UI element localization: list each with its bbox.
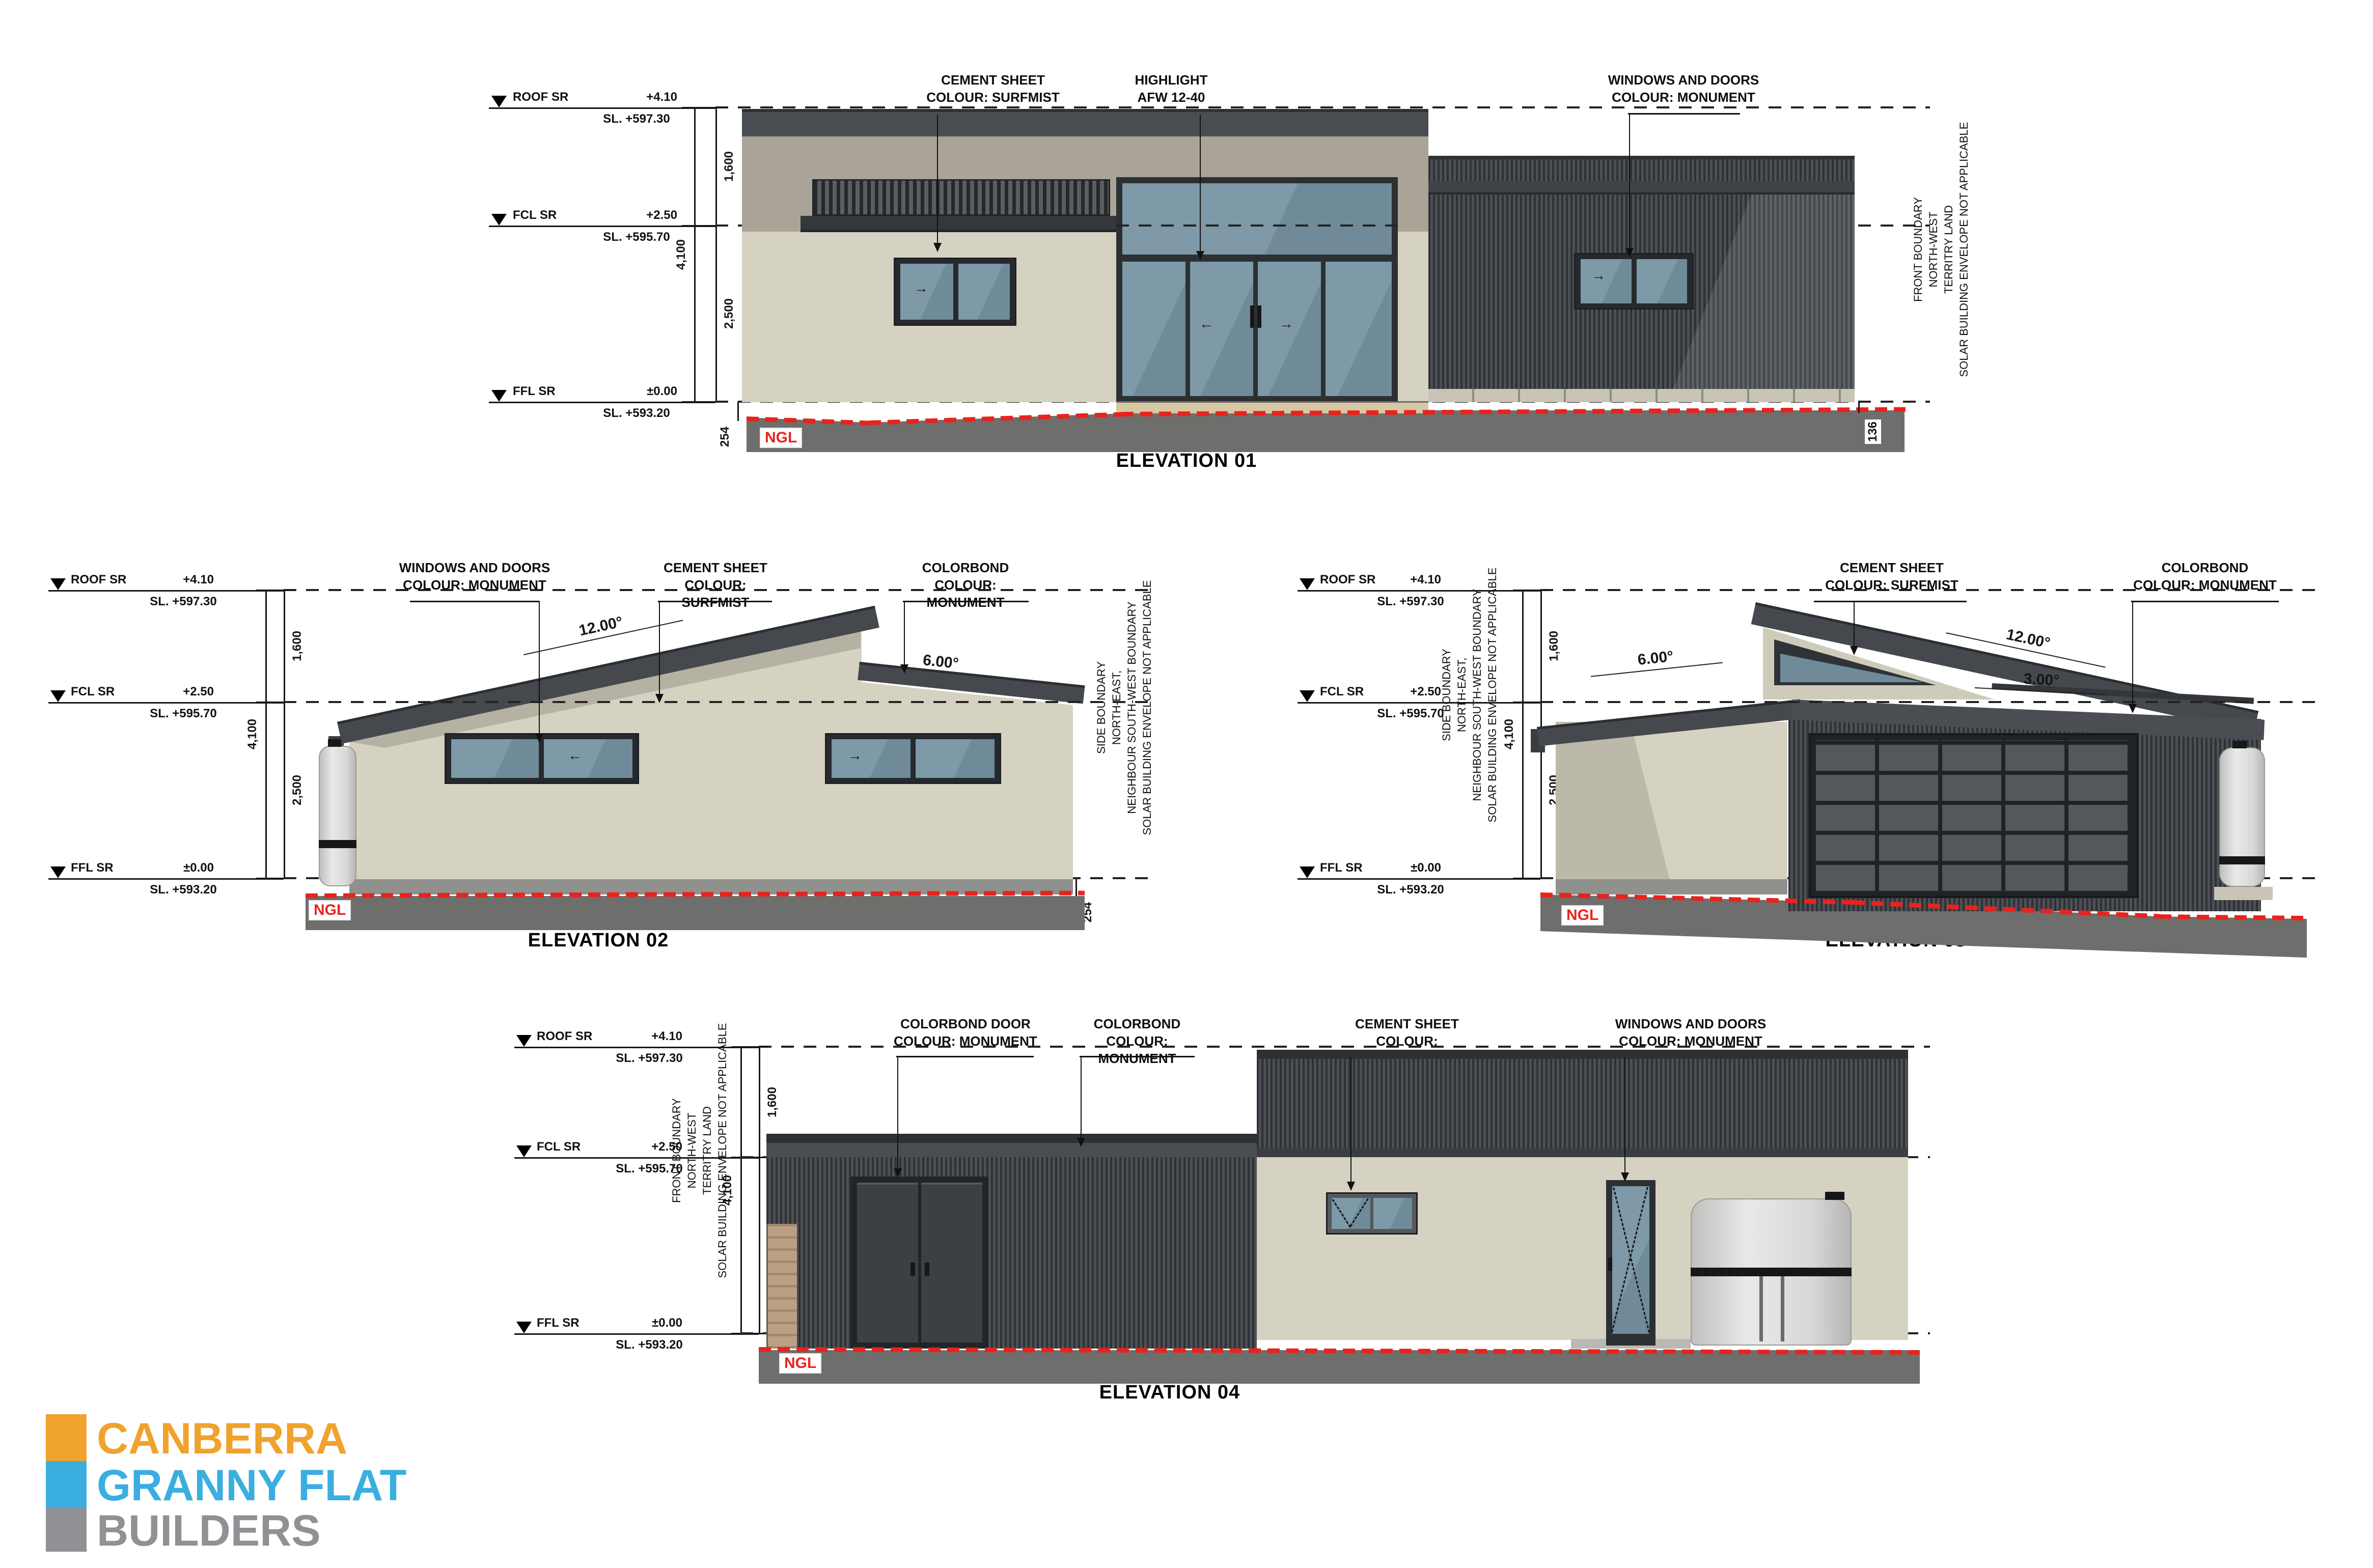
ffl-level-marker-icon bbox=[1300, 866, 1315, 878]
fcl-level-marker-icon bbox=[1300, 690, 1315, 702]
leader-arrow-icon bbox=[1196, 251, 1204, 260]
ffl-level-sl: SL. +593.20 bbox=[1370, 882, 1451, 898]
leader-arrow-icon bbox=[1850, 646, 1858, 655]
window-pane bbox=[1373, 1198, 1412, 1229]
parapet-cap bbox=[1257, 1050, 1908, 1059]
callout-colorbond-door: COLORBOND DOOR COLOUR: MONUMENT bbox=[884, 1015, 1047, 1050]
dim-roof-fcl: 1,600 bbox=[290, 631, 305, 661]
fcl-level-label: FCL SR bbox=[1320, 684, 1364, 699]
callout-leader bbox=[539, 602, 540, 734]
ffl-level-line bbox=[48, 878, 284, 880]
fcl-level-marker-icon bbox=[491, 214, 507, 226]
fcl-level-marker-icon bbox=[50, 690, 66, 702]
boundary-line: NEIGHBOUR SOUTH-WEST BOUNDARY bbox=[1470, 568, 1485, 823]
callout-line1: WINDOWS AND DOORS bbox=[1599, 71, 1768, 89]
elevation-01-title: ELEVATION 01 bbox=[1085, 450, 1288, 472]
plinth-blocks bbox=[1428, 389, 1855, 402]
door-swing-arrow-icon: ← bbox=[1199, 316, 1213, 332]
callout-line1: COLORBOND bbox=[2129, 559, 2281, 576]
ngl-offset-dim: 136 bbox=[1865, 419, 1881, 444]
fcl-level-label: FCL SR bbox=[513, 208, 557, 223]
logo-text-canberra: CANBERRA bbox=[97, 1414, 347, 1461]
fcl-dashed-over-glass bbox=[1116, 225, 1398, 227]
ngl-offset-dim-line bbox=[737, 402, 739, 421]
tank-pad bbox=[2214, 887, 2273, 900]
callout-line1: COLORBOND DOOR bbox=[884, 1015, 1047, 1032]
callout-line1: COLORBOND bbox=[1076, 1015, 1198, 1032]
dim-line-overall bbox=[265, 590, 267, 878]
callout-line2: COLOUR: MONUMENT bbox=[884, 1032, 1047, 1050]
ngl-label: NGL bbox=[779, 1353, 821, 1374]
callout-leader bbox=[1624, 1057, 1625, 1172]
tank-band bbox=[2219, 856, 2265, 864]
colorbond-roof-band bbox=[1257, 1059, 1908, 1149]
leader-arrow-icon bbox=[933, 243, 942, 252]
fcl-datum-dashed-line bbox=[1540, 701, 2322, 703]
boundary-line: SOLAR BUILDING ENVELOPE NOT APPLICABLE bbox=[715, 1023, 730, 1278]
callout-windows-doors: WINDOWS AND DOORS COLOUR: MONUMENT bbox=[393, 559, 556, 594]
colorbond-fascia bbox=[1428, 181, 1855, 194]
callout-line2: COLOUR: MONUMENT bbox=[1609, 1032, 1772, 1050]
elevation-04-title: ELEVATION 04 bbox=[1068, 1382, 1272, 1404]
callout-leader bbox=[659, 602, 660, 694]
highlight-slat-band bbox=[812, 179, 1110, 216]
callout-leader bbox=[2132, 602, 2133, 704]
tank-cap bbox=[2232, 741, 2247, 748]
ffl-level-sl: SL. +593.20 bbox=[143, 882, 224, 898]
roof-band-lip bbox=[1257, 1149, 1908, 1157]
door-handle bbox=[910, 1263, 915, 1276]
leader-arrow-icon bbox=[535, 734, 543, 743]
tank-pipe bbox=[1759, 1276, 1763, 1341]
callout-line1: HIGHLIGHT bbox=[1110, 71, 1232, 89]
ffl-level-label: FFL SR bbox=[537, 1315, 580, 1331]
dim-line-overall bbox=[740, 1047, 742, 1333]
boundary-line: NORTH-EAST, bbox=[1109, 580, 1124, 835]
boundary-line: FRONT BOUNDARY bbox=[669, 1023, 684, 1278]
boundary-note-side: SIDE BOUNDARY NORTH-EAST, NEIGHBOUR SOUT… bbox=[1094, 580, 1155, 835]
roof-level-marker-icon bbox=[1300, 578, 1315, 590]
window-slide-arrow-icon: → bbox=[1591, 267, 1606, 284]
garage-fascia bbox=[766, 1143, 1257, 1157]
dim-line-overall bbox=[694, 107, 696, 402]
garage-door bbox=[1809, 733, 2139, 898]
boundary-line: SOLAR BUILDING ENVELOPE NOT APPLICABLE bbox=[1956, 122, 1972, 377]
window-pane bbox=[544, 739, 632, 778]
callout-underline bbox=[410, 601, 540, 602]
roof-level-marker-icon bbox=[516, 1035, 532, 1047]
tank-cap bbox=[328, 739, 341, 747]
dim-tick bbox=[731, 1046, 768, 1048]
roof-level-label: ROOF SR bbox=[537, 1029, 592, 1044]
door-handle bbox=[1257, 305, 1261, 328]
roof-level-rl: +4.10 bbox=[1365, 572, 1441, 587]
ffl-level-line bbox=[1298, 878, 1540, 880]
roof-level-line bbox=[48, 590, 284, 592]
ffl-level-marker-icon bbox=[50, 866, 66, 878]
dim-roof-fcl: 1,600 bbox=[722, 151, 736, 182]
ground bbox=[306, 896, 1085, 930]
roof-datum-dashed-line bbox=[715, 106, 1930, 108]
dim-fcl-ffl: 2,500 bbox=[290, 775, 305, 805]
highlight-window bbox=[1122, 183, 1392, 255]
fcl-level-marker-icon bbox=[516, 1145, 532, 1157]
dim-tick bbox=[1513, 590, 1550, 591]
window-slide-arrow-icon: → bbox=[914, 280, 928, 296]
callout-leader bbox=[904, 602, 905, 664]
roof-level-rl: +4.10 bbox=[581, 90, 677, 105]
fcl-level-sl: SL. +595.70 bbox=[143, 706, 224, 721]
ffl-level-marker-icon bbox=[491, 390, 507, 402]
boundary-line: NORTH-WEST bbox=[684, 1023, 700, 1278]
callout-line2: COLOUR: MONUMENT bbox=[2129, 576, 2281, 594]
boundary-line: NORTH-EAST, bbox=[1454, 568, 1470, 823]
callout-line1: CEMENT SHEET bbox=[654, 559, 777, 576]
ffl-level-rl: ±0.00 bbox=[137, 860, 214, 876]
fcl-level-sl: SL. +595.70 bbox=[586, 230, 687, 245]
leader-arrow-icon bbox=[894, 1168, 902, 1178]
boundary-line: NORTH-WEST bbox=[1926, 122, 1941, 377]
callout-windows-doors: WINDOWS AND DOORS COLOUR: MONUMENT bbox=[1599, 71, 1768, 106]
fcl-datum-dashed-line bbox=[284, 701, 1148, 703]
window-slide-arrow-icon: → bbox=[848, 747, 862, 764]
callout-colorbond: COLORBOND COLOUR: MONUMENT bbox=[2129, 559, 2281, 594]
window-pane bbox=[958, 264, 1010, 320]
ffl-level-sl: SL. +593.20 bbox=[606, 1337, 693, 1353]
leader-arrow-icon bbox=[1625, 248, 1634, 257]
tank-cap bbox=[1825, 1192, 1844, 1200]
callout-line2: COLOUR: MONUMENT bbox=[1599, 89, 1768, 106]
logo-text-granny-flat: GRANNY FLAT bbox=[97, 1461, 406, 1508]
leader-arrow-icon bbox=[1621, 1172, 1629, 1182]
fcl-level-line bbox=[48, 702, 284, 704]
garage-fascia-cap bbox=[766, 1134, 1257, 1143]
dim-roof-fcl: 1,600 bbox=[765, 1087, 780, 1117]
dim-fcl-ffl: 2,500 bbox=[722, 298, 736, 329]
logo-text-builders: BUILDERS bbox=[97, 1508, 321, 1552]
ngl-offset-dim-line bbox=[1858, 401, 1860, 413]
colorbond-wall bbox=[766, 1157, 1257, 1349]
dim-tick bbox=[256, 590, 293, 591]
callout-windows-doors: WINDOWS AND DOORS COLOUR: MONUMENT bbox=[1609, 1015, 1772, 1050]
leader-arrow-icon bbox=[1347, 1182, 1355, 1191]
ffl-level-rl: ±0.00 bbox=[1365, 860, 1441, 876]
dim-line-storey bbox=[759, 1047, 760, 1333]
callout-line1: WINDOWS AND DOORS bbox=[1609, 1015, 1772, 1032]
callout-cement-sheet: CEMENT SHEET COLOUR: SURFMIST bbox=[1810, 559, 1973, 594]
colorbond-parapet bbox=[1428, 156, 1855, 181]
callout-leader bbox=[1081, 1057, 1082, 1138]
ground bbox=[759, 1350, 1920, 1384]
elevation-sheet: ROOF SR +4.10 SL. +597.30 FCL SR +2.50 S… bbox=[0, 0, 2373, 1568]
roof-level-label: ROOF SR bbox=[71, 572, 126, 587]
callout-line1: CEMENT SHEET bbox=[1810, 559, 1973, 576]
dim-line-overall bbox=[1522, 590, 1524, 878]
callout-line2: AFW 12-40 bbox=[1110, 89, 1232, 106]
callout-leader bbox=[1350, 1057, 1351, 1182]
window-pane bbox=[916, 739, 995, 778]
highlight-trim bbox=[801, 216, 1116, 232]
fcl-level-label: FCL SR bbox=[537, 1139, 581, 1155]
fcl-level-label: FCL SR bbox=[71, 684, 115, 699]
roof-level-line bbox=[1298, 590, 1540, 592]
fcl-level-line bbox=[1298, 702, 1540, 704]
roof-level-sl: SL. +597.30 bbox=[586, 111, 687, 127]
boundary-line: TERRITRY LAND bbox=[1941, 122, 1956, 377]
callout-line1: WINDOWS AND DOORS bbox=[393, 559, 556, 576]
callout-underline bbox=[896, 1056, 1034, 1057]
dim-overall: 4,100 bbox=[245, 719, 260, 749]
dim-line-storey bbox=[715, 107, 717, 402]
door-leaf bbox=[857, 1183, 918, 1342]
callout-line2: COLOUR: MONUMENT bbox=[393, 576, 556, 594]
dim-overall: 4,100 bbox=[674, 239, 688, 270]
boundary-line: NEIGHBOUR SOUTH-WEST BOUNDARY bbox=[1124, 580, 1140, 835]
garage-door-panels bbox=[1816, 740, 2132, 891]
callout-leader bbox=[937, 115, 938, 243]
roof-level-rl: +4.10 bbox=[137, 572, 214, 587]
roof-level-marker-icon bbox=[50, 578, 66, 590]
door-swing-arrow-icon: → bbox=[1279, 316, 1293, 332]
fcl-level-rl: +2.50 bbox=[137, 684, 214, 699]
logo-orange-square-icon bbox=[46, 1414, 87, 1461]
dim-tick bbox=[682, 107, 728, 108]
wall-shading bbox=[1556, 722, 1787, 879]
callout-line2: COLOUR: SURFMIST bbox=[912, 89, 1074, 106]
boundary-line: TERRITRY LAND bbox=[700, 1023, 715, 1278]
callout-leader bbox=[897, 1057, 898, 1168]
ngl-label: NGL bbox=[760, 428, 802, 448]
tank-pipe bbox=[1781, 1276, 1784, 1341]
logo-gray-square-icon bbox=[46, 1508, 87, 1552]
callout-underline bbox=[1628, 113, 1740, 115]
roof-level-sl: SL. +597.30 bbox=[143, 594, 224, 609]
ffl-level-marker-icon bbox=[516, 1322, 532, 1333]
window-pane bbox=[1581, 259, 1632, 303]
boundary-note-front: FRONT BOUNDARY NORTH-WEST TERRITRY LAND … bbox=[1911, 122, 1972, 377]
glazed-door-panel bbox=[1326, 262, 1392, 396]
dim-roof-fcl: 1,600 bbox=[1547, 631, 1561, 661]
slab-edge bbox=[1556, 879, 1787, 894]
glazed-door-panel bbox=[1122, 262, 1185, 396]
boundary-note-front: FRONT BOUNDARY NORTH-WEST TERRITRY LAND … bbox=[669, 1023, 730, 1278]
callout-leader bbox=[1629, 115, 1630, 248]
elevation-02-title: ELEVATION 02 bbox=[496, 930, 700, 951]
ffl-level-rl: ±0.00 bbox=[601, 1315, 682, 1331]
callout-line1: CEMENT SHEET bbox=[1346, 1015, 1468, 1032]
ngl-label: NGL bbox=[1561, 905, 1604, 926]
boundary-line: SOLAR BUILDING ENVELOPE NOT APPLICABLE bbox=[1485, 568, 1500, 823]
ffl-level-label: FFL SR bbox=[71, 860, 114, 876]
window-pane bbox=[832, 739, 910, 778]
ground bbox=[747, 410, 1905, 452]
roof-level-marker-icon bbox=[491, 96, 507, 107]
door-handle bbox=[925, 1263, 929, 1276]
roof-angle-6: 6.00° bbox=[1589, 643, 1723, 677]
parapet-roof-band bbox=[742, 109, 1428, 136]
water-tank bbox=[2219, 747, 2265, 887]
ffl-level-sl: SL. +593.20 bbox=[586, 406, 687, 421]
window-slide-arrow-icon: ← bbox=[568, 747, 582, 764]
boundary-line: SOLAR BUILDING ENVELOPE NOT APPLICABLE bbox=[1140, 580, 1155, 835]
boundary-line: SIDE BOUNDARY bbox=[1094, 580, 1109, 835]
window-pane bbox=[1637, 259, 1687, 303]
callout-cement-sheet: CEMENT SHEET COLOUR: SURFMIST bbox=[912, 71, 1074, 106]
fcl-level-rl: +2.50 bbox=[581, 208, 677, 223]
callout-underline bbox=[1814, 601, 1967, 602]
callout-line1: CEMENT SHEET bbox=[912, 71, 1074, 89]
boundary-line: FRONT BOUNDARY bbox=[1911, 122, 1926, 377]
ffl-level-label: FFL SR bbox=[513, 384, 556, 399]
ffl-level-label: FFL SR bbox=[1320, 860, 1363, 876]
callout-colorbond: COLORBOND COLOUR: MONUMENT bbox=[1076, 1015, 1198, 1067]
dim-overall: 4,100 bbox=[1502, 719, 1516, 749]
window-pane bbox=[451, 739, 539, 778]
ffl-level-rl: ±0.00 bbox=[581, 384, 677, 399]
door-leaf bbox=[921, 1183, 982, 1342]
ngl-label: NGL bbox=[309, 900, 351, 920]
callout-line1: COLORBOND bbox=[904, 559, 1027, 576]
door-handle bbox=[1250, 305, 1254, 328]
tank-band bbox=[1691, 1268, 1852, 1276]
roof-level-label: ROOF SR bbox=[513, 90, 568, 105]
callout-underline bbox=[903, 601, 1029, 602]
dim-line-storey bbox=[284, 590, 285, 878]
callout-underline bbox=[658, 601, 772, 602]
callout-underline bbox=[2131, 601, 2279, 602]
callout-line2: COLOUR: SURFMIST bbox=[1810, 576, 1973, 594]
callout-leader bbox=[1854, 602, 1855, 646]
callout-highlight: HIGHLIGHT AFW 12-40 bbox=[1110, 71, 1232, 106]
ffl-level-line bbox=[514, 1333, 759, 1335]
callout-underline bbox=[1080, 1056, 1195, 1057]
door-handle bbox=[1608, 1257, 1612, 1271]
boundary-line: SIDE BOUNDARY bbox=[1439, 568, 1454, 823]
water-tank bbox=[319, 746, 356, 886]
ngl-offset-dim: 254 bbox=[718, 427, 732, 447]
callout-line2: COLOUR: MONUMENT bbox=[1076, 1032, 1198, 1067]
leader-arrow-icon bbox=[1077, 1138, 1085, 1147]
leader-arrow-icon bbox=[2129, 704, 2137, 713]
fcl-level-rl: +2.50 bbox=[1365, 684, 1441, 699]
boundary-note-side: SIDE BOUNDARY NORTH-EAST, NEIGHBOUR SOUT… bbox=[1439, 568, 1500, 823]
callout-leader bbox=[1200, 115, 1201, 251]
leader-arrow-icon bbox=[655, 694, 664, 703]
logo-blue-square-icon bbox=[46, 1461, 87, 1508]
brick-pier bbox=[766, 1224, 797, 1349]
roof-angle-3: 3.00° bbox=[1975, 668, 2108, 695]
tank-band bbox=[319, 840, 356, 848]
leader-arrow-icon bbox=[900, 664, 908, 674]
